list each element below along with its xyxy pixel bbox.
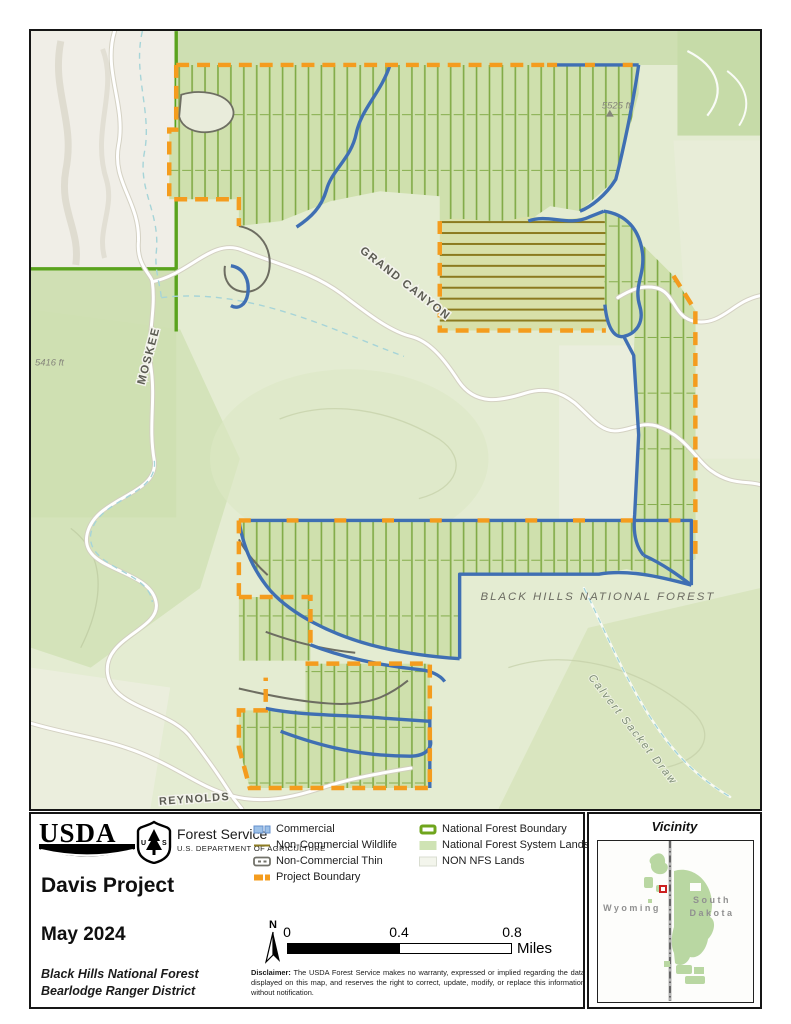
page-title: Davis Project xyxy=(41,874,174,898)
commercial-swatch-icon xyxy=(253,824,271,835)
vicinity-map: Wyoming South Dakota xyxy=(597,840,754,1003)
svg-text:U: U xyxy=(141,840,146,847)
forest-unit-line2: Bearlodge Ranger District xyxy=(41,983,199,1000)
scale-bar-filled-segment xyxy=(288,944,400,953)
legend-label: Non-Commercial Thin xyxy=(276,855,383,867)
legend-item-noncommercial-wildlife: Non-Commercial Wildlife xyxy=(253,837,397,853)
north-arrow: N xyxy=(262,920,284,969)
map-sheet: GRAND CANYON MOSKEE REYNOLDS BLACK HILLS… xyxy=(0,0,791,1024)
project-boundary-swatch-icon xyxy=(253,872,271,883)
vicinity-panel: Vicinity xyxy=(587,812,762,1009)
elevation-label-5416: 5416 ft xyxy=(35,357,64,368)
usda-swoosh-icon xyxy=(39,844,135,859)
nf-boundary-swatch-icon xyxy=(419,824,437,835)
scale-tick-04: 0.4 xyxy=(389,924,408,940)
scale-tick-0: 0 xyxy=(283,924,291,940)
nfs-lands-swatch-icon xyxy=(419,840,437,851)
map-area: GRAND CANYON MOSKEE REYNOLDS BLACK HILLS… xyxy=(29,29,762,811)
disclaimer-text: Disclaimer: The USDA Forest Service make… xyxy=(251,968,585,998)
legend-item-non-nfs-lands: NON NFS Lands xyxy=(419,853,589,869)
legend-label: Project Boundary xyxy=(276,871,360,883)
title-legend-panel: USDA U S Forest Service U.S. DEPARTMENT … xyxy=(29,812,585,1009)
legend-label: NON NFS Lands xyxy=(442,855,525,867)
state-label-dakota: Dakota xyxy=(689,908,734,918)
svg-text:S: S xyxy=(162,840,167,847)
map-canvas: GRAND CANYON MOSKEE REYNOLDS BLACK HILLS… xyxy=(31,31,760,809)
legend-label: Commercial xyxy=(276,823,335,835)
state-label-south: South xyxy=(693,895,731,905)
forest-unit-line1: Black Hills National Forest xyxy=(41,966,199,983)
legend-column-right: National Forest Boundary National Forest… xyxy=(419,821,589,869)
map-date: May 2024 xyxy=(41,924,126,946)
non-nfs-swatch-icon xyxy=(419,856,437,867)
legend-label: Non-Commercial Wildlife xyxy=(276,839,397,851)
disclaimer-body: The USDA Forest Service makes no warrant… xyxy=(251,968,585,997)
legend-item-noncommercial-thin: Non-Commercial Thin xyxy=(253,853,397,869)
usda-logo: USDA xyxy=(39,822,139,864)
legend-item-nf-boundary: National Forest Boundary xyxy=(419,821,589,837)
scale-unit-label: Miles xyxy=(517,940,552,957)
forest-name-label: BLACK HILLS NATIONAL FOREST xyxy=(480,591,715,603)
north-label: N xyxy=(262,920,284,930)
legend-label: National Forest Boundary xyxy=(442,823,567,835)
scale-tick-08: 0.8 xyxy=(502,924,521,940)
vicinity-map-canvas: Wyoming South Dakota xyxy=(598,841,752,1001)
thin-swatch-icon xyxy=(253,856,271,867)
forest-unit-lines: Black Hills National Forest Bearlodge Ra… xyxy=(41,966,199,1000)
north-arrow-icon xyxy=(263,930,283,964)
elevation-label-5525: 5525 ft xyxy=(602,101,631,112)
scale-bar xyxy=(287,943,512,954)
legend-label: National Forest System Lands xyxy=(442,839,589,851)
legend-item-nfs-lands: National Forest System Lands xyxy=(419,837,589,853)
forest-service-shield-icon: U S xyxy=(135,820,173,864)
wildlife-swatch-icon xyxy=(253,840,271,851)
usda-logo-text: USDA xyxy=(39,822,139,844)
legend-item-commercial: Commercial xyxy=(253,821,397,837)
disclaimer-label: Disclaimer: xyxy=(251,968,291,977)
legend-column-left: Commercial Non-Commercial Wildlife Non-C… xyxy=(253,821,397,885)
project-location-marker xyxy=(660,886,666,892)
legend-item-project-boundary: Project Boundary xyxy=(253,869,397,885)
state-label-wyoming: Wyoming xyxy=(603,903,661,913)
vicinity-forest-areas xyxy=(644,853,714,984)
vicinity-title: Vicinity xyxy=(589,819,760,834)
